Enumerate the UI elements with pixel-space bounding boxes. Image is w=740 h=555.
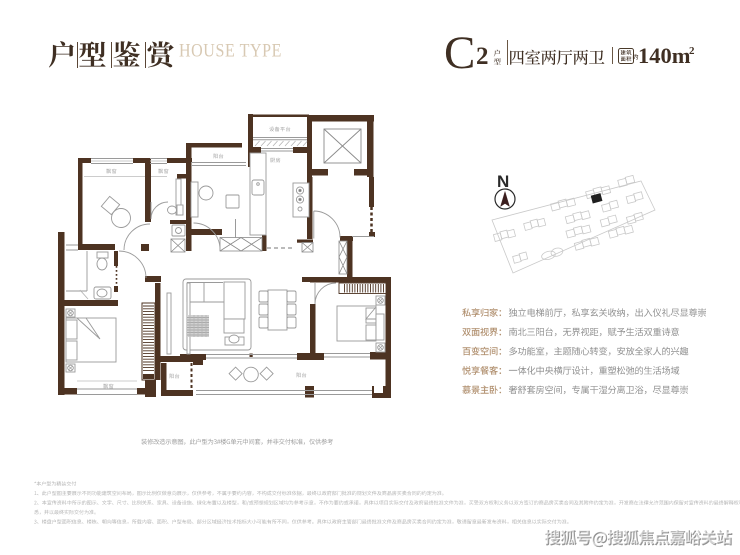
svg-text:N: N [497, 172, 509, 191]
